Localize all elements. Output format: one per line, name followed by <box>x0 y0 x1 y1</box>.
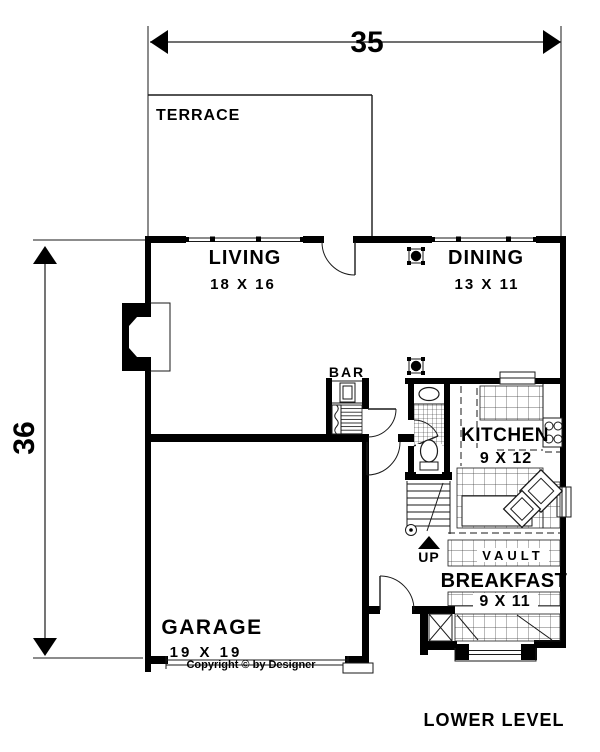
living-room: LIVING 18 X 16 <box>209 247 282 293</box>
dimension-width-label: 35 <box>350 26 383 59</box>
arrow-left-icon <box>150 30 168 54</box>
kitchen-tile-a <box>480 386 543 420</box>
breakfast-size-label: 9 X 11 <box>479 593 530 610</box>
garage-label: GARAGE <box>161 616 262 639</box>
toilet-icon <box>421 440 438 462</box>
sink-icon <box>419 388 439 401</box>
toilet-tank <box>420 462 438 470</box>
dimension-top: 35 <box>148 26 561 236</box>
dining-size-label: 13 X 11 <box>455 276 520 293</box>
dimension-left: 36 <box>8 240 145 658</box>
bar-label: BAR <box>329 364 365 380</box>
breakfast-tile-lower <box>455 614 560 641</box>
column-icon <box>407 357 425 375</box>
arrow-up-icon <box>33 246 57 264</box>
bar-area: BAR <box>329 364 365 434</box>
copyright-label: Copyright © by Designer <box>186 659 316 671</box>
dimension-height-label: 36 <box>8 421 41 454</box>
terrace-label: TERRACE <box>156 107 240 124</box>
garage: GARAGE 19 X 19 Copyright © by Designer <box>161 616 373 673</box>
living-window <box>186 237 303 243</box>
up-label: UP <box>418 549 439 565</box>
floor-plan-drawing: 35 36 TERRACE <box>0 0 600 752</box>
closet-door <box>368 409 396 437</box>
dining-window <box>432 237 536 243</box>
plan-title: LOWER LEVEL <box>424 710 565 730</box>
living-size-label: 18 X 16 <box>210 276 276 293</box>
entry-door <box>322 242 355 275</box>
kitchen-label: KITCHEN <box>461 425 549 446</box>
dining-room: DINING 13 X 11 <box>448 247 524 293</box>
powder-room <box>414 388 444 475</box>
column-icon <box>407 247 425 265</box>
dining-label: DINING <box>448 247 524 269</box>
columns <box>407 247 425 375</box>
up-arrow-icon <box>418 536 440 549</box>
flue-box <box>429 614 452 641</box>
hall-door <box>367 442 400 475</box>
exterior-step <box>343 663 373 673</box>
arrow-right-icon <box>543 30 561 54</box>
terrace: TERRACE <box>148 95 372 236</box>
fireplace <box>122 303 170 371</box>
breakfast-label: BREAKFAST <box>441 570 568 592</box>
living-label: LIVING <box>209 247 282 269</box>
kitchen: KITCHEN 9 X 12 <box>457 384 562 528</box>
arrow-down-icon <box>33 638 57 656</box>
kitchen-size-label: 9 X 12 <box>480 450 532 467</box>
rear-door <box>380 576 414 610</box>
floor-plan-page: 35 36 TERRACE <box>0 0 600 752</box>
stairs: UP <box>406 481 451 565</box>
vault-label: VAULT <box>482 548 543 563</box>
closet-hatch <box>341 405 362 434</box>
kitchen-pass-through-window <box>500 372 535 384</box>
